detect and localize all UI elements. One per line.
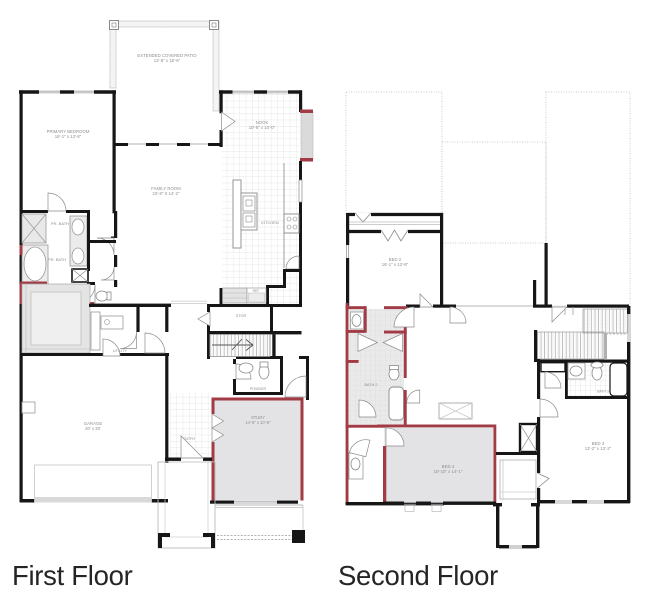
svg-text:23'-8" X 14'-2": 23'-8" X 14'-2" (152, 191, 180, 196)
svg-text:BATH 3: BATH 3 (597, 390, 609, 394)
svg-text:16'-1" x 13'-8": 16'-1" x 13'-8" (55, 134, 82, 139)
svg-text:UTILITY: UTILITY (113, 349, 128, 353)
svg-text:16'-1" x 13'-8": 16'-1" x 13'-8" (382, 262, 409, 267)
svg-text:20' x 20': 20' x 20' (85, 426, 101, 431)
svg-text:10'-10" x 14'-1": 10'-10" x 14'-1" (434, 469, 463, 474)
svg-text:PR. BATH: PR. BATH (48, 257, 66, 262)
svg-text:14'-8" x 10'-8": 14'-8" x 10'-8" (245, 420, 271, 425)
svg-text:First Floor: First Floor (12, 560, 133, 591)
svg-text:BATH 2: BATH 2 (364, 383, 377, 387)
svg-text:PR. BATH: PR. BATH (51, 221, 69, 226)
svg-text:KITCHEN: KITCHEN (261, 220, 279, 225)
svg-text:STOR: STOR (236, 314, 247, 318)
svg-text:13'-2" x 13'-2": 13'-2" x 13'-2" (585, 446, 612, 451)
svg-text:10'-8" x 10'-0": 10'-8" x 10'-0" (249, 125, 276, 130)
svg-text:Second Floor: Second Floor (338, 560, 498, 591)
svg-text:REF: REF (253, 289, 260, 293)
svg-text:13'-8" x 18'-6": 13'-8" x 18'-6" (154, 58, 181, 63)
svg-text:POWDER: POWDER (250, 387, 267, 391)
